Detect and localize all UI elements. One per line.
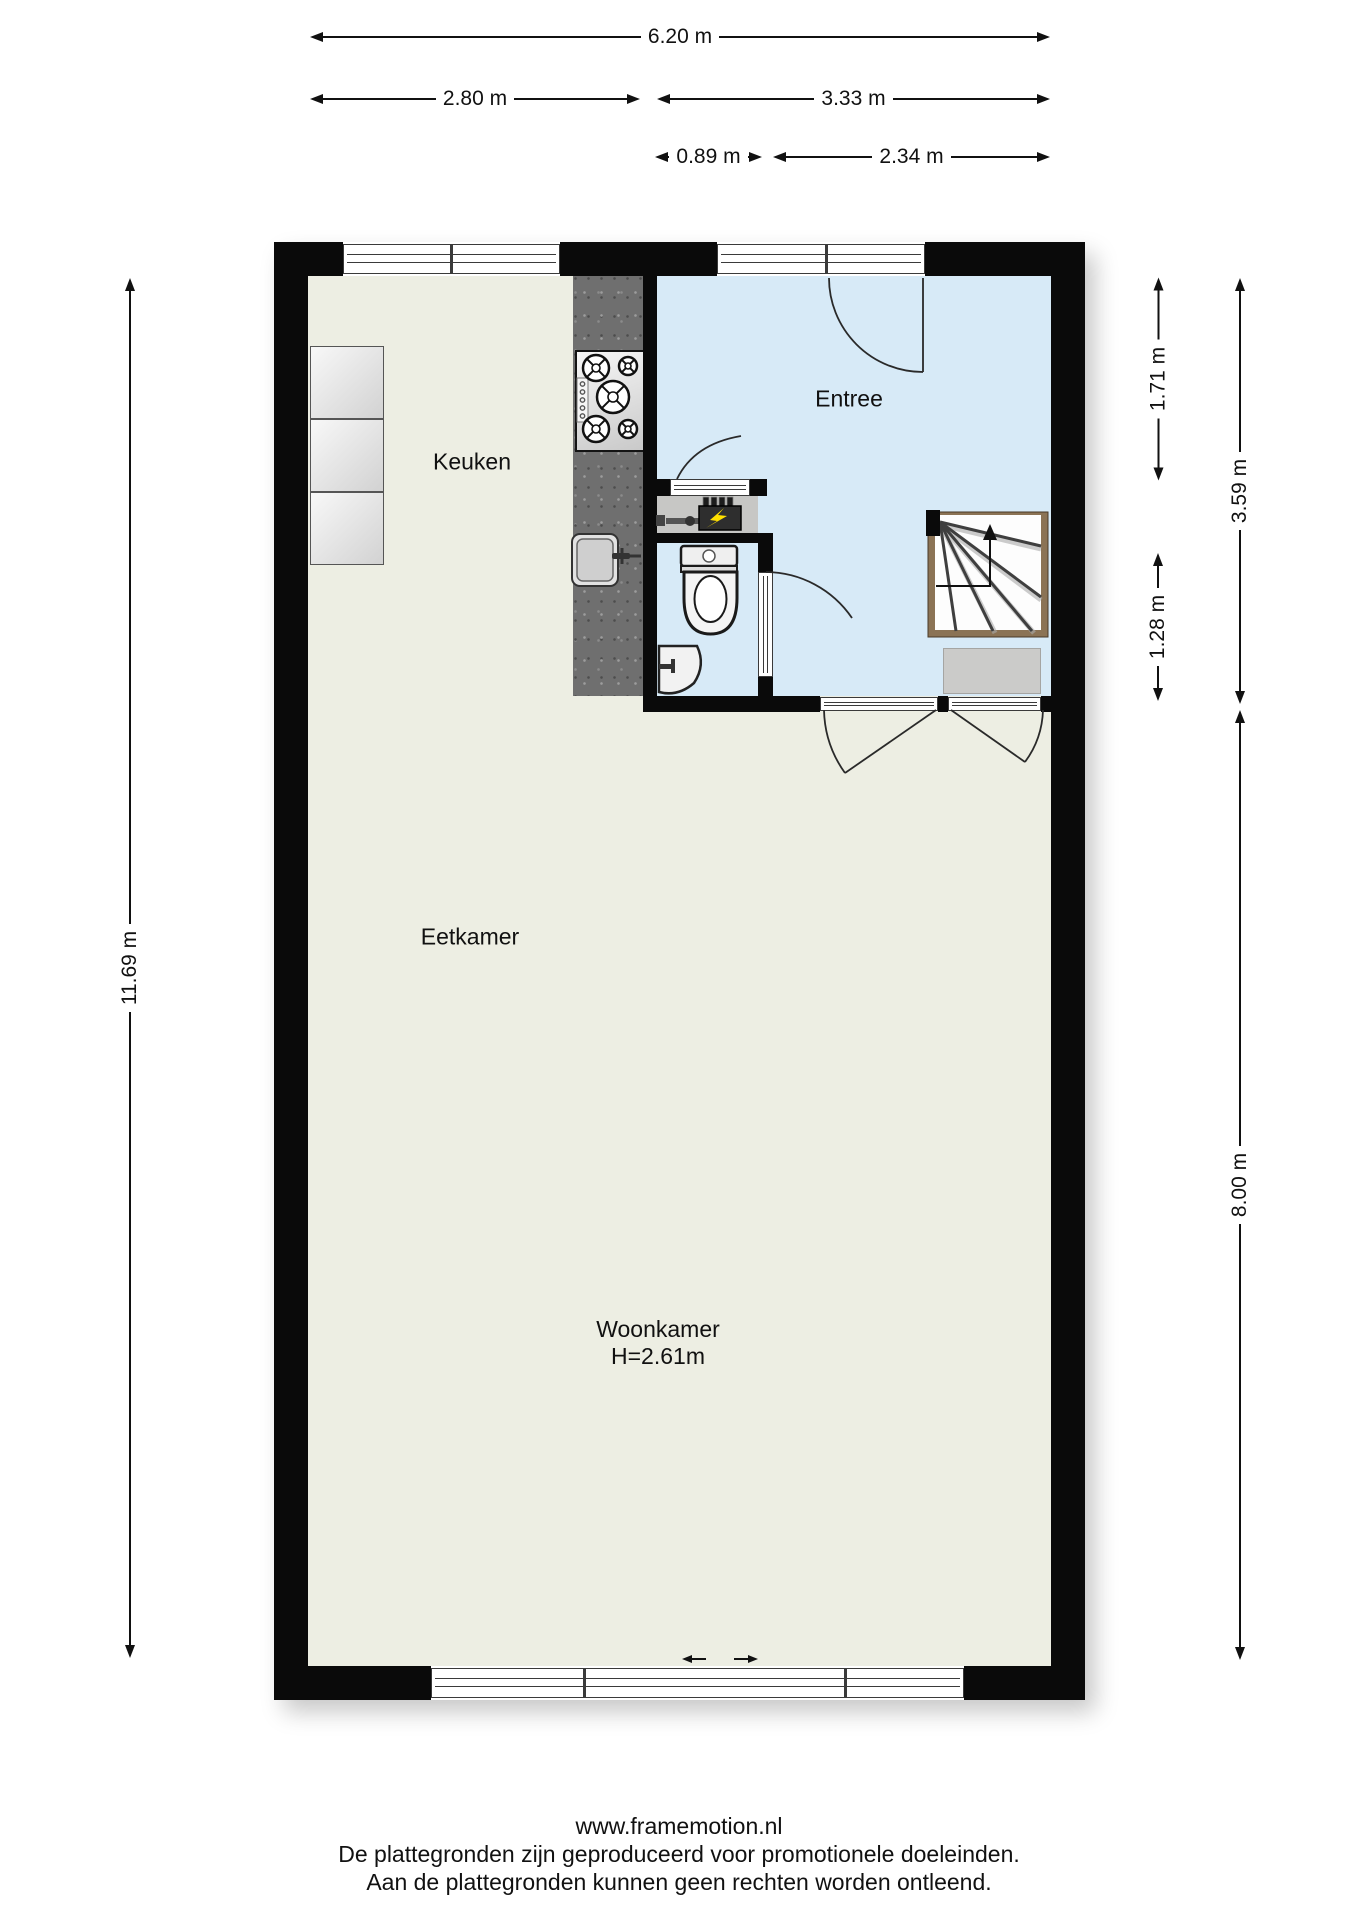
floorplan-canvas: Keuken Entree Eetkamer Woonkamer H=2.61m… [0,0,1358,1920]
dim-left-total: 11.69 m [120,278,140,1658]
dim-inner-right: 2.34 m [773,147,1050,167]
dim-right-top: 1.71 m [1149,278,1169,481]
toilet-door-arc [766,572,852,618]
footer-disclaimer: Aan de plattegronden kunnen geen rechten… [0,1868,1358,1896]
washbasin-icon [659,646,701,693]
sink-icon [572,534,641,586]
front-door-arc [829,278,923,372]
stove-burners-icon [577,355,637,442]
electric-meter-icon [656,497,741,530]
footer-website: www.framemotion.nl [0,1812,1358,1840]
footer-disclaimer: De plattegronden zijn geproduceerd voor … [0,1840,1358,1868]
meterkast-door-arc [677,436,741,479]
room-label-woonkamer: Woonkamer H=2.61m [596,1316,720,1370]
footer: www.framemotion.nl De plattegronden zijn… [0,1812,1358,1896]
dim-inner-left: 0.89 m [655,147,762,167]
dim-right-mid: 1.28 m [1148,553,1168,701]
dim-top-total: 6.20 m [310,27,1050,47]
room-label-keuken: Keuken [433,449,511,476]
dim-top-left: 2.80 m [310,89,640,109]
room-label-entree: Entree [815,386,883,413]
room-label-eetkamer: Eetkamer [421,924,519,951]
dim-right-lower-total: 8.00 m [1230,710,1250,1660]
door-arc-right [951,710,1043,762]
door-arc-left [824,710,936,773]
woonkamer-name: Woonkamer [596,1316,720,1343]
woonkamer-height: H=2.61m [596,1343,720,1370]
staircase [926,510,1048,637]
dim-right-upper-total: 3.59 m [1230,278,1250,704]
toilet-icon [681,546,737,634]
dim-top-right: 3.33 m [657,89,1050,109]
sliding-door-arrows-icon [682,1655,758,1663]
